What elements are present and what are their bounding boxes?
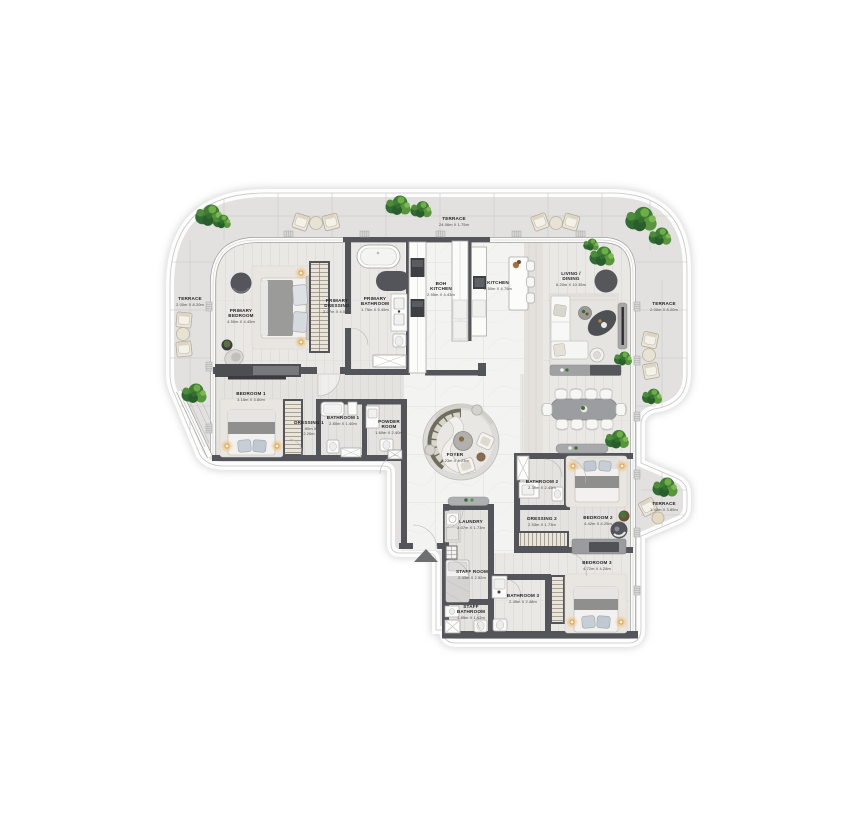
- svg-text:2.53m X 1.73m: 2.53m X 1.73m: [528, 522, 556, 527]
- svg-text:ROOM: ROOM: [381, 424, 396, 429]
- svg-text:BEDROOM 1: BEDROOM 1: [236, 391, 266, 396]
- svg-text:FOYER: FOYER: [447, 452, 464, 457]
- svg-text:2.00m X 8.20m: 2.00m X 8.20m: [650, 307, 678, 312]
- svg-text:2.00m X 8.20m: 2.00m X 8.20m: [176, 302, 204, 307]
- svg-text:2.80m X 1.40m: 2.80m X 1.40m: [329, 421, 357, 426]
- svg-text:BATHROOM 3: BATHROOM 3: [507, 593, 540, 598]
- svg-text:KITCHEN: KITCHEN: [487, 280, 509, 285]
- svg-text:2.20m: 2.20m: [303, 431, 314, 436]
- svg-text:BEDROOM 2: BEDROOM 2: [583, 515, 613, 520]
- svg-text:BATHROOM 2: BATHROOM 2: [526, 479, 559, 484]
- svg-text:3.15m X 3.80m: 3.15m X 3.80m: [237, 397, 265, 402]
- svg-text:STAFF ROOM: STAFF ROOM: [456, 569, 488, 574]
- svg-text:1.75m X 5.45m: 1.75m X 5.45m: [361, 307, 389, 312]
- svg-text:1.60m X 2.40m: 1.60m X 2.40m: [375, 430, 403, 435]
- svg-text:TERRACE: TERRACE: [178, 296, 202, 301]
- svg-text:BEDROOM 3: BEDROOM 3: [582, 560, 612, 565]
- svg-text:DRESSING: DRESSING: [324, 303, 350, 308]
- svg-text:1.40m X 3.85m: 1.40m X 3.85m: [650, 507, 678, 512]
- svg-text:4.42m X 4.25m: 4.42m X 4.25m: [584, 521, 612, 526]
- svg-text:3.23m X 4.23m: 3.23m X 4.23m: [441, 458, 469, 463]
- svg-text:2.07m X 1.73m: 2.07m X 1.73m: [457, 525, 485, 530]
- svg-text:DRESSING 1: DRESSING 1: [294, 420, 324, 425]
- svg-text:4.50m X 4.45m: 4.50m X 4.45m: [227, 319, 255, 324]
- svg-text:BEDROOM: BEDROOM: [228, 313, 253, 318]
- svg-text:TERRACE: TERRACE: [652, 301, 676, 306]
- svg-text:BATHROOM: BATHROOM: [361, 301, 389, 306]
- svg-text:KITCHEN: KITCHEN: [430, 286, 452, 291]
- svg-text:2.43m X 2.52m: 2.43m X 2.52m: [458, 575, 486, 580]
- svg-text:DRESSING 2: DRESSING 2: [527, 516, 557, 521]
- svg-text:2.39m X 2.45m: 2.39m X 2.45m: [528, 485, 556, 490]
- svg-text:TERRACE: TERRACE: [442, 216, 466, 221]
- svg-text:2.07m X 4.03m: 2.07m X 4.03m: [323, 309, 351, 314]
- svg-text:DINING: DINING: [562, 276, 580, 281]
- svg-text:2.95m X 4.43m: 2.95m X 4.43m: [427, 292, 455, 297]
- svg-text:4.72m X 4.28m: 4.72m X 4.28m: [583, 566, 611, 571]
- svg-text:2.50m X 4.75m: 2.50m X 4.75m: [484, 286, 512, 291]
- svg-text:BATHROOM: BATHROOM: [457, 609, 485, 614]
- svg-text:1.85m X 1.42m: 1.85m X 1.42m: [457, 615, 485, 620]
- svg-text:BATHROOM 1: BATHROOM 1: [327, 415, 360, 420]
- svg-text:LAUNDRY: LAUNDRY: [459, 519, 483, 524]
- svg-text:6.20m X 10.35m: 6.20m X 10.35m: [556, 282, 586, 287]
- svg-text:24.06m X 1.75m: 24.06m X 1.75m: [439, 222, 469, 227]
- svg-text:TERRACE: TERRACE: [652, 501, 676, 506]
- svg-text:2.45m X 2.48m: 2.45m X 2.48m: [509, 599, 537, 604]
